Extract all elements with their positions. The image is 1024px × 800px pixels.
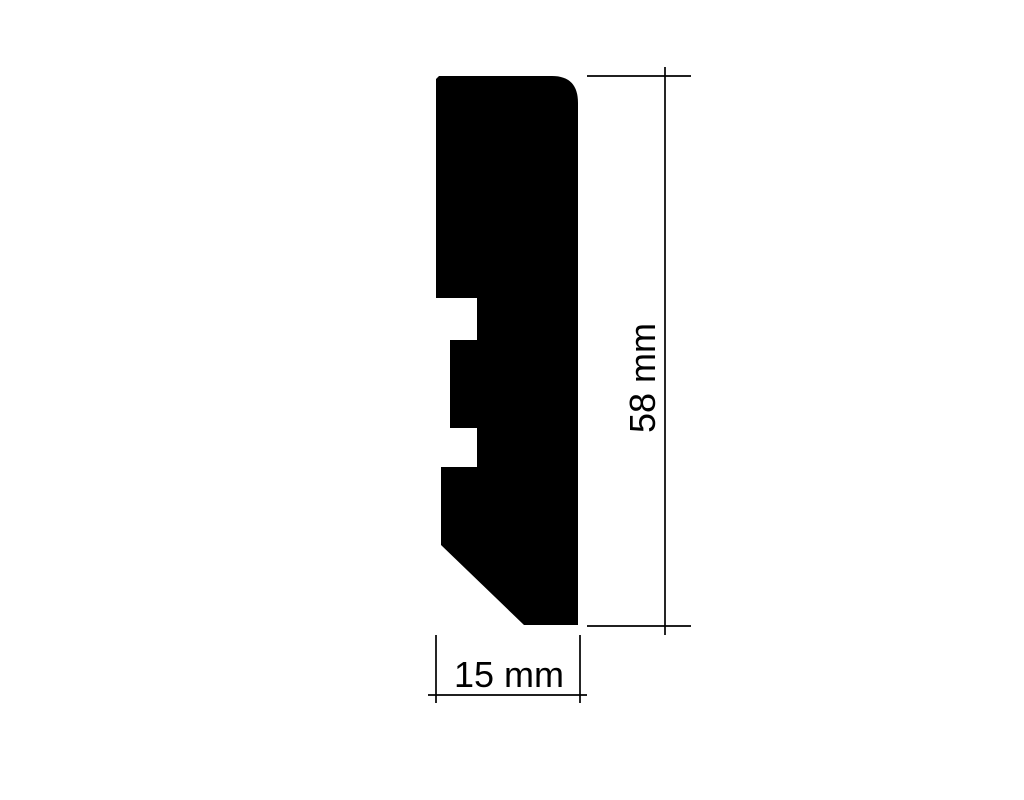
width-dimension-label: 15 mm [454, 654, 564, 695]
height-dimension-label: 58 mm [622, 323, 663, 433]
width-dimension: 15 mm [428, 635, 587, 703]
technical-drawing: 58 mm 15 mm [0, 0, 1024, 800]
drawing-canvas: 58 mm 15 mm [0, 0, 1024, 800]
profile-silhouette [436, 76, 578, 625]
height-dimension: 58 mm [587, 67, 691, 635]
